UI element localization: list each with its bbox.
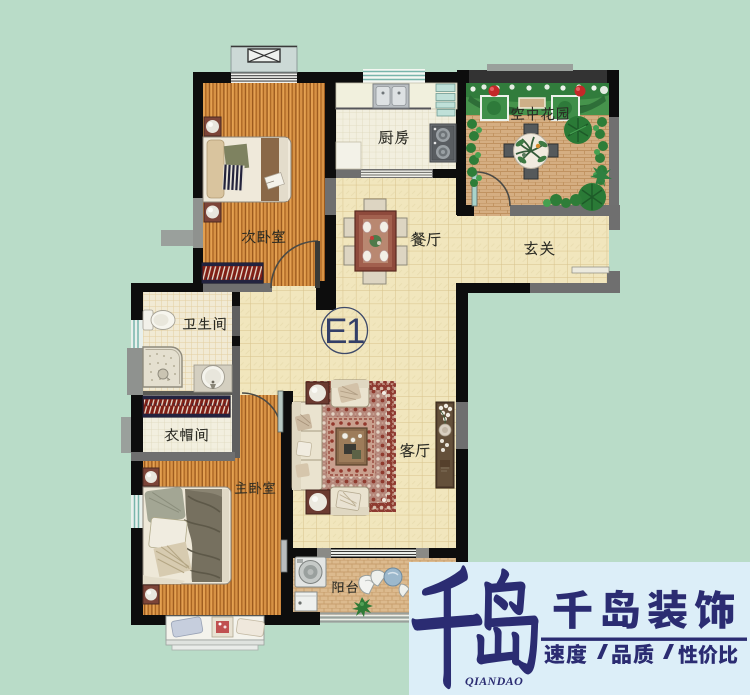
svg-text:E1: E1 — [324, 312, 364, 351]
svg-text:QIANDAO: QIANDAO — [465, 674, 523, 688]
